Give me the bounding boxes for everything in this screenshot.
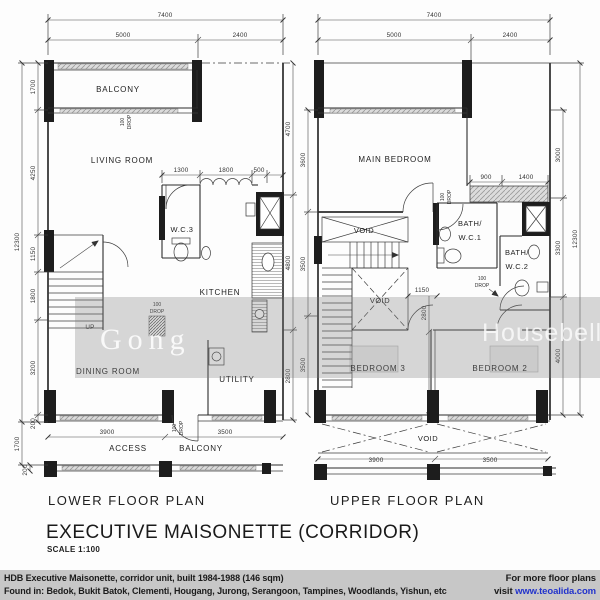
room-label-bath2-line1: BATH/ [505,248,529,257]
dim-lower-left-1800: 1800 [30,288,37,303]
dim-lower-left-1150: 1150 [30,247,37,262]
upper-wardrobe: 900 1400 [470,174,548,202]
drop-label-balcony-drop: DROP [127,114,133,129]
room-label-kitchen: KITCHEN [200,288,241,297]
upper-top-dimensions: 7400 5000 2400 [318,12,550,100]
lower-left-dimensions: 1700 4250 1150 1800 3200 200 12300 1700 … [14,63,48,476]
dim-upper-2400: 2400 [503,32,518,39]
room-label-access: ACCESS [109,444,147,453]
upper-floor-plan: 7400 5000 2400 MAIN BEDROOM 100 DROP [300,12,584,480]
dim-lower-left-12300: 12300 [14,232,21,251]
watermark: Gong Housebell [75,297,600,378]
lower-service-duct [246,192,284,236]
room-label-bath1-line2: W.C.1 [459,233,482,242]
dim-lower-7400: 7400 [158,12,173,19]
dim-upper-1150: 1150 [415,287,430,294]
bath2-toilet-bowl [515,280,529,296]
upper-void-strip: VOID [322,217,408,242]
dim-upper-right-3000: 3000 [555,147,562,162]
footer-visit-label: visit [494,586,515,597]
dim-upper-3900: 3900 [369,457,384,464]
dim-upper-1400: 1400 [519,174,534,181]
dim-lower-right-4700: 4700 [285,121,292,136]
wash-basin [202,247,211,260]
dim-lower-left-200a: 200 [30,418,37,429]
room-label-living: LIVING ROOM [91,156,153,165]
footer-line1: HDB Executive Maisonette, corridor unit,… [4,572,284,585]
dim-upper-7400: 7400 [427,12,442,19]
upper-bath-wc1: BATH/ W.C.1 [433,203,497,268]
lower-door-dimensions: 1300 1800 500 [162,167,283,183]
dim-lower-1300: 1300 [174,167,189,174]
drop-access-drop: DROP [179,420,185,435]
bath1-toilet-bowl [445,249,461,263]
dim-lower-right-4800: 4800 [285,255,292,270]
room-label-main-bedroom: MAIN BEDROOM [358,155,431,164]
dim-upper-right-3300: 3300 [555,240,562,255]
dim-lower-3500: 3500 [218,429,233,436]
bath2-basin [529,245,540,259]
lower-bottom-wall: 100 DROP 3900 3500 ACCESS BALCONY [44,390,283,477]
void-label-bottom: VOID [418,434,438,443]
lower-balcony: BALCONY 100 DROP [44,60,202,129]
drop-upper-drop: DROP [475,283,490,289]
bath2-shelf [537,282,548,292]
dim-upper-900: 900 [480,174,491,181]
lower-wc3: W.C.3 [159,185,211,261]
dim-lower-2400: 2400 [233,32,248,39]
lower-kitchen-wall [162,179,258,185]
stair-door-swing [103,242,128,267]
kitchen-sink [262,253,274,271]
floor-plan-page: 7400 5000 2400 BALCONY 100 DROP LIVING R… [0,0,600,600]
dim-lower-left-1700b: 1700 [14,436,21,451]
footer-promo: For more floor plans [506,572,596,585]
wc3-door-swing [166,185,190,209]
lower-plan-title: LOWER FLOOR PLAN [48,493,206,508]
room-label-bath2-line2: W.C.2 [506,262,529,271]
void-label-top: VOID [354,226,374,235]
floor-plan-drawing: 7400 5000 2400 BALCONY 100 DROP LIVING R… [0,0,600,570]
dim-lower-500: 500 [253,167,264,174]
drop-access-100: 100 [172,424,178,433]
dim-lower-3900: 3900 [100,429,115,436]
upper-front-wall: VOID 3900 3500 [314,390,556,480]
plan-titles: LOWER FLOOR PLAN UPPER FLOOR PLAN EXECUT… [46,493,485,554]
room-label-wc3: W.C.3 [171,225,194,234]
bedroom-door-swing [403,183,433,212]
dim-lower-left-1700: 1700 [30,79,37,94]
upper-service-duct [522,202,550,236]
room-label-balcony: BALCONY [96,85,140,94]
drop-label-balcony-100: 100 [120,118,126,127]
page-title: EXECUTIVE MAISONETTE (CORRIDOR) [46,522,419,543]
scale-note: SCALE 1:100 [47,545,100,554]
upper-main-bedroom: MAIN BEDROOM 100 DROP [318,108,467,212]
dim-lower-5000: 5000 [116,32,131,39]
upper-plan-title: UPPER FLOOR PLAN [330,493,485,508]
teoalida-link[interactable]: www.teoalida.com [515,586,596,597]
bath1-toilet-tank [437,248,444,263]
footer-bar: HDB Executive Maisonette, corridor unit,… [0,570,600,600]
dim-upper-right-12300: 12300 [572,229,579,248]
drop-bedroom-drop: DROP [447,189,453,204]
lower-top-dimensions: 7400 5000 2400 [48,12,283,58]
dim-upper-3500: 3500 [483,457,498,464]
dim-lower-left-3200: 3200 [30,360,37,375]
footer-line2: Found in: Bedok, Bukit Batok, Clementi, … [4,585,447,598]
room-label-access-balcony: BALCONY [179,444,223,453]
room-label-bath1-line1: BATH/ [458,219,482,228]
watermark-right: Housebell [482,319,600,347]
watermark-left: Gong [100,323,191,356]
lower-floor-plan: 7400 5000 2400 BALCONY 100 DROP LIVING R… [14,12,297,477]
dim-lower-left-4250: 4250 [30,165,37,180]
dim-upper-left-3600: 3600 [300,152,307,167]
folding-door [200,179,252,185]
drop-bedroom-100: 100 [440,193,446,202]
drop-upper-100: 100 [478,276,487,282]
dim-upper-5000: 5000 [387,32,402,39]
dim-upper-left-3500a: 3500 [300,256,307,271]
dim-lower-left-200b: 200 [22,464,29,475]
upper-drop-note: 100 DROP [475,276,498,296]
dim-lower-1800: 1800 [219,167,234,174]
